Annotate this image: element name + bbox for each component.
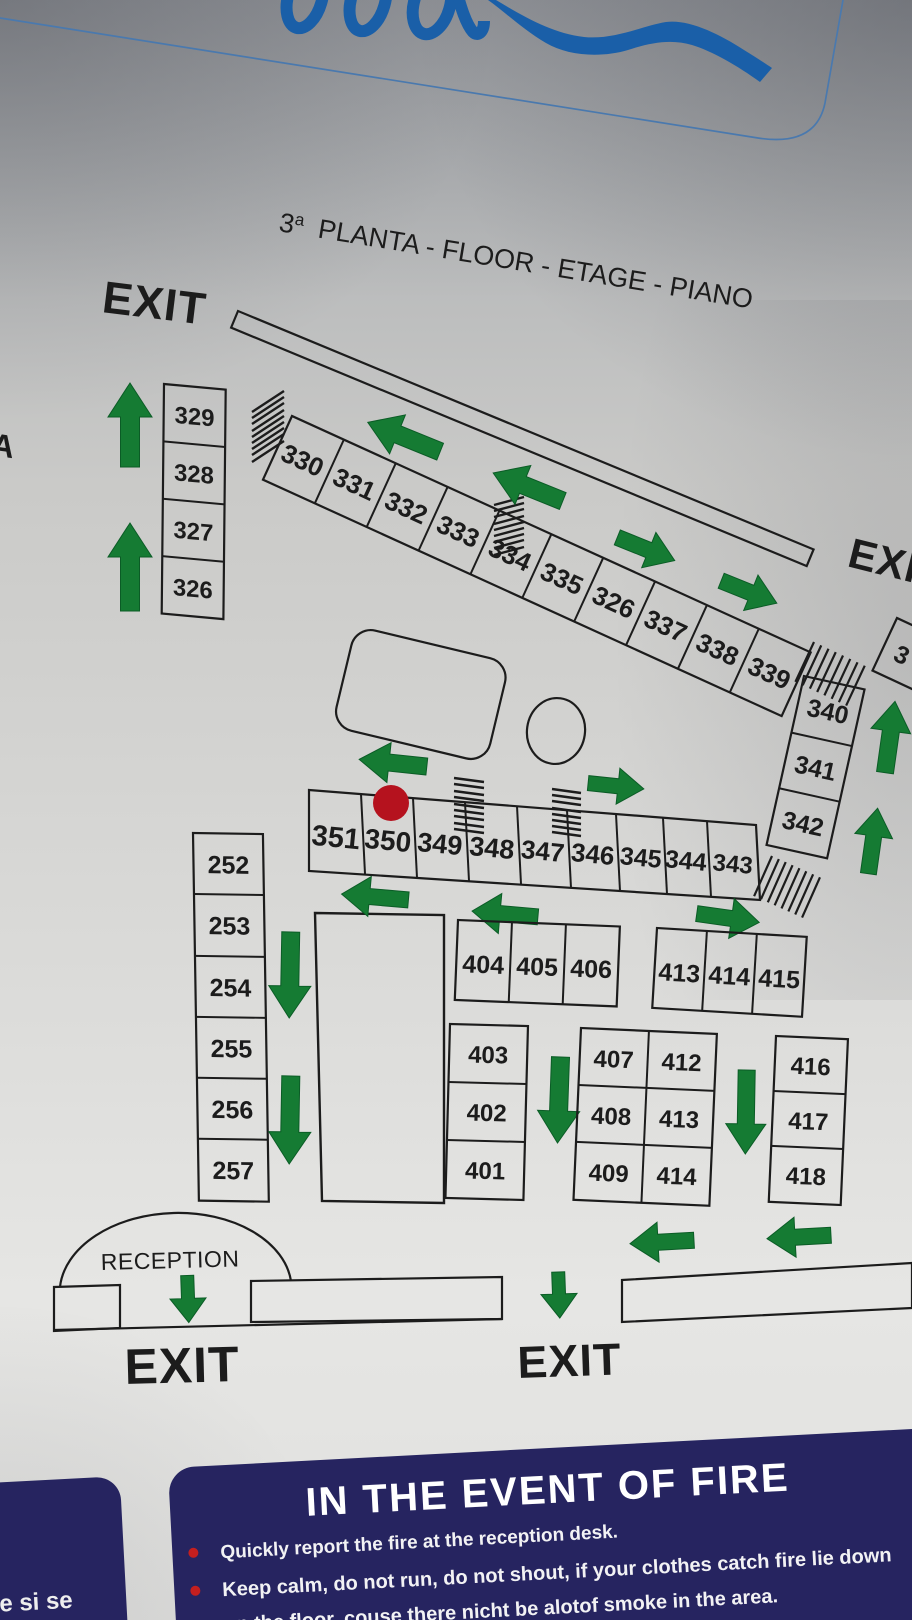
svg-text:402: 402 (466, 1099, 507, 1127)
svg-text:407: 407 (593, 1046, 634, 1075)
svg-text:RECEPTION: RECEPTION (100, 1245, 239, 1275)
svg-text:405: 405 (516, 952, 559, 982)
svg-text:418: 418 (785, 1163, 826, 1192)
svg-text:348: 348 (468, 831, 516, 865)
svg-text:404: 404 (462, 950, 505, 980)
svg-text:350: 350 (363, 823, 412, 858)
svg-text:252: 252 (207, 851, 249, 880)
svg-text:EXIT: EXIT (517, 1333, 623, 1388)
svg-text:257: 257 (212, 1157, 254, 1186)
svg-text:408: 408 (591, 1103, 632, 1132)
svg-text:346: 346 (570, 837, 616, 871)
svg-text:401: 401 (465, 1157, 506, 1185)
svg-text:403: 403 (468, 1041, 509, 1069)
svg-text:347: 347 (520, 834, 566, 868)
svg-text:329: 329 (174, 402, 214, 433)
svg-text:417: 417 (788, 1108, 829, 1137)
svg-text:412: 412 (661, 1049, 702, 1078)
svg-text:351: 351 (310, 820, 361, 856)
svg-text:415: 415 (758, 964, 801, 994)
svg-text:414: 414 (656, 1162, 698, 1191)
svg-text:328: 328 (174, 459, 214, 490)
svg-text:345: 345 (619, 842, 663, 874)
svg-text:253: 253 (208, 912, 250, 941)
svg-text:413: 413 (658, 958, 701, 988)
svg-text:326: 326 (173, 574, 213, 605)
svg-text:413: 413 (658, 1106, 699, 1135)
svg-text:406: 406 (570, 955, 613, 985)
svg-text:EXIT: EXIT (124, 1336, 241, 1395)
svg-text:256: 256 (211, 1096, 253, 1125)
svg-text:409: 409 (588, 1159, 629, 1188)
svg-text:254: 254 (209, 974, 251, 1003)
svg-text:414: 414 (708, 961, 751, 991)
svg-text:344: 344 (664, 845, 708, 877)
svg-text:255: 255 (210, 1035, 252, 1064)
svg-text:e si se: e si se (0, 1587, 73, 1618)
svg-text:416: 416 (790, 1053, 831, 1082)
svg-text:349: 349 (416, 827, 464, 861)
svg-text:327: 327 (173, 517, 213, 548)
svg-text:343: 343 (711, 849, 753, 880)
